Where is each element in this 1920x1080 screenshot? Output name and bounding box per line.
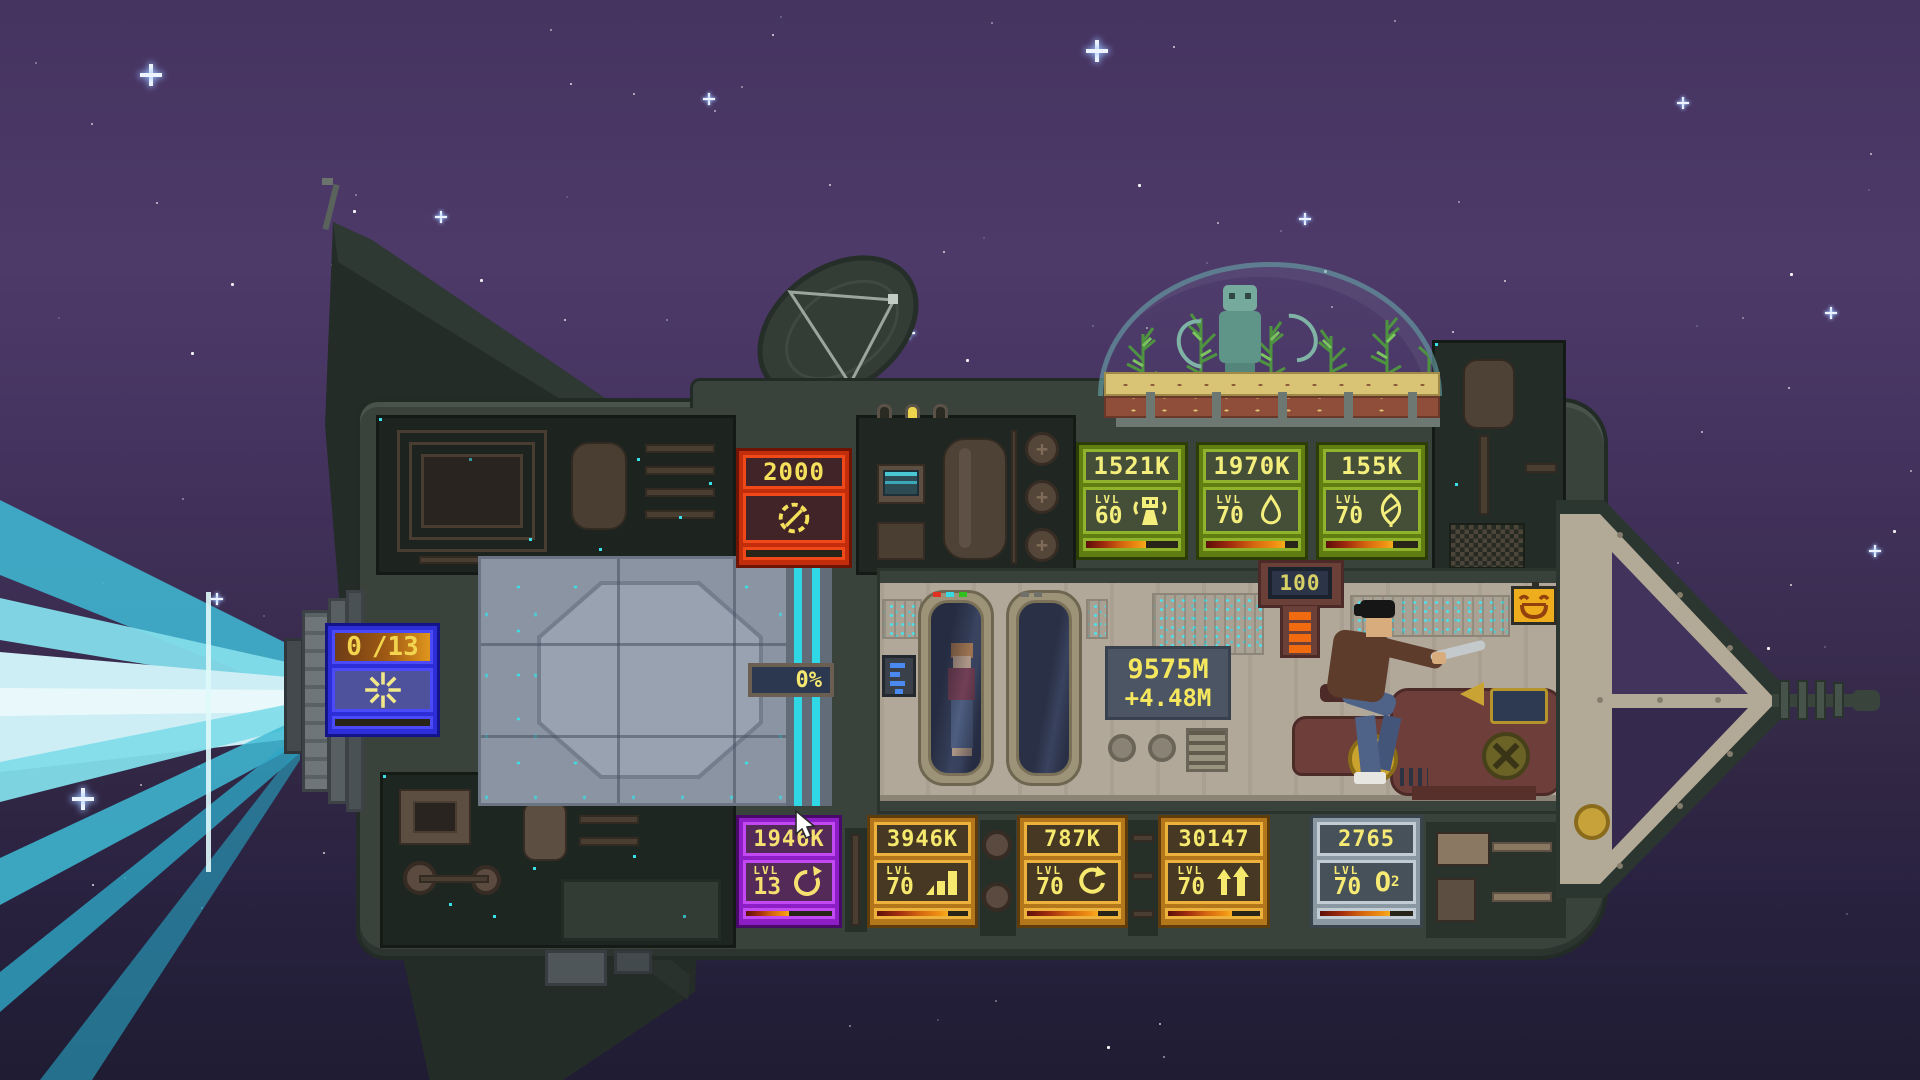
engine-capacity: /13 [372,632,419,662]
panel-value: 155K [1323,449,1421,483]
panel-value: 1946K [743,822,835,856]
progress-fill [1168,911,1232,916]
upgrade-panel-water[interactable]: 1970K LVL70 [1196,442,1308,560]
refresh-icon [1073,864,1109,900]
starburst-icon [363,670,403,710]
robot-icon [1131,494,1169,528]
level-value: 70 [1177,876,1205,899]
level-value: 70 [1036,876,1064,899]
upgrade-panel-plants[interactable]: 155K LVL70 [1316,442,1428,560]
progress-fill [1086,541,1146,548]
level-value: 13 [753,876,781,899]
progress-fill [1326,541,1393,548]
heat-bar [1289,612,1311,653]
panel-value: 30147 [1165,822,1263,856]
crew-arrows-icon [1215,865,1251,899]
rotate-icon [789,864,825,900]
level-value: 70 [886,876,914,899]
counter-total: 9575M [1127,654,1208,685]
upgrade-panel-signal[interactable]: 3946K LVL70 [867,815,978,928]
panel-value: 2000 [743,455,845,489]
panel-value: 1521K [1083,449,1181,483]
droplet-icon [1254,493,1288,529]
progress-fill [1027,911,1098,916]
smiley-sign [1510,582,1558,626]
upgrade-panel-engine[interactable]: 0 /13 [325,623,440,737]
upgrade-panel-oxygen[interactable]: 2765 LVL70 O2 [1310,815,1423,928]
upgrade-panel-fuel[interactable]: 2000 [736,448,852,568]
mouse-cursor [794,810,820,840]
level-value: 60 [1095,505,1123,528]
progress-fill [877,911,948,916]
gear-coin-icon [774,498,814,538]
upgrade-panel-crew[interactable]: 30147 LVL70 [1158,815,1270,928]
level-value: 70 [1335,505,1363,528]
engine-current: 0 [346,632,362,662]
progress-fill [746,911,789,916]
panel-value: 2765 [1317,822,1416,856]
efficiency-badge: 0% [748,663,834,697]
leaf-icon [1373,493,1409,529]
gold-capacitor [1576,806,1608,838]
panel-value: 787K [1024,822,1121,856]
level-value: 70 [1334,876,1362,899]
resource-counter: 9575M +4.48M [1105,646,1231,720]
counter-rate: +4.48M [1125,685,1212,713]
upgrade-panel-recycler[interactable]: 1946K LVL13 [736,815,842,928]
upgrade-panel-refresh[interactable]: 787K LVL70 [1017,815,1128,928]
progress-fill [1320,911,1390,916]
game-stage: + + + [0,0,1920,1080]
engine-slots: 0 /13 [332,630,433,664]
progress-fill [1206,541,1285,548]
level-value: 70 [1216,505,1244,528]
oxygen-icon: O2 [1375,869,1400,896]
panel-value: 3946K [874,822,971,856]
upgrade-panel-robots[interactable]: 1521K LVL60 [1076,442,1188,560]
signal-bars-icon [923,866,959,898]
crew-capacity-badge: 100 [1268,567,1332,599]
panel-value: 1970K [1203,449,1301,483]
